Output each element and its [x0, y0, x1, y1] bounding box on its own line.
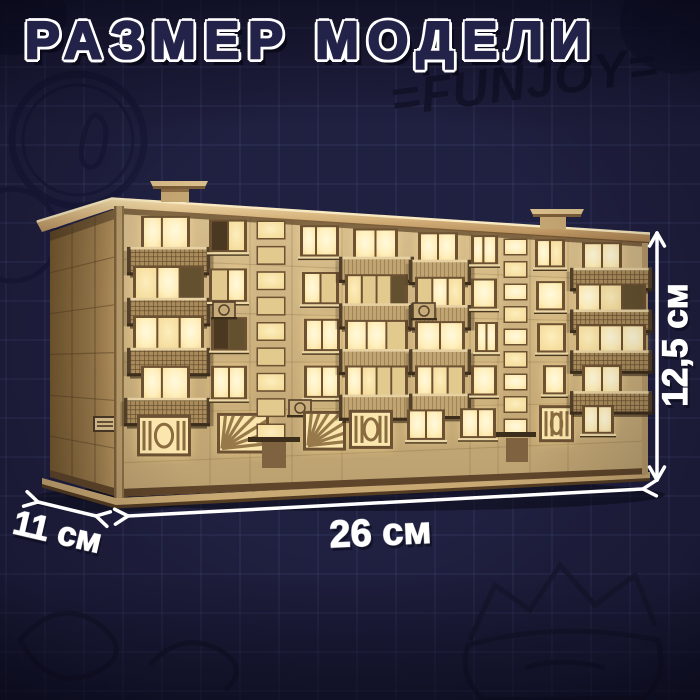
- svg-text:12,5 см: 12,5 см: [656, 283, 695, 406]
- svg-text:26 см: 26 см: [328, 510, 432, 557]
